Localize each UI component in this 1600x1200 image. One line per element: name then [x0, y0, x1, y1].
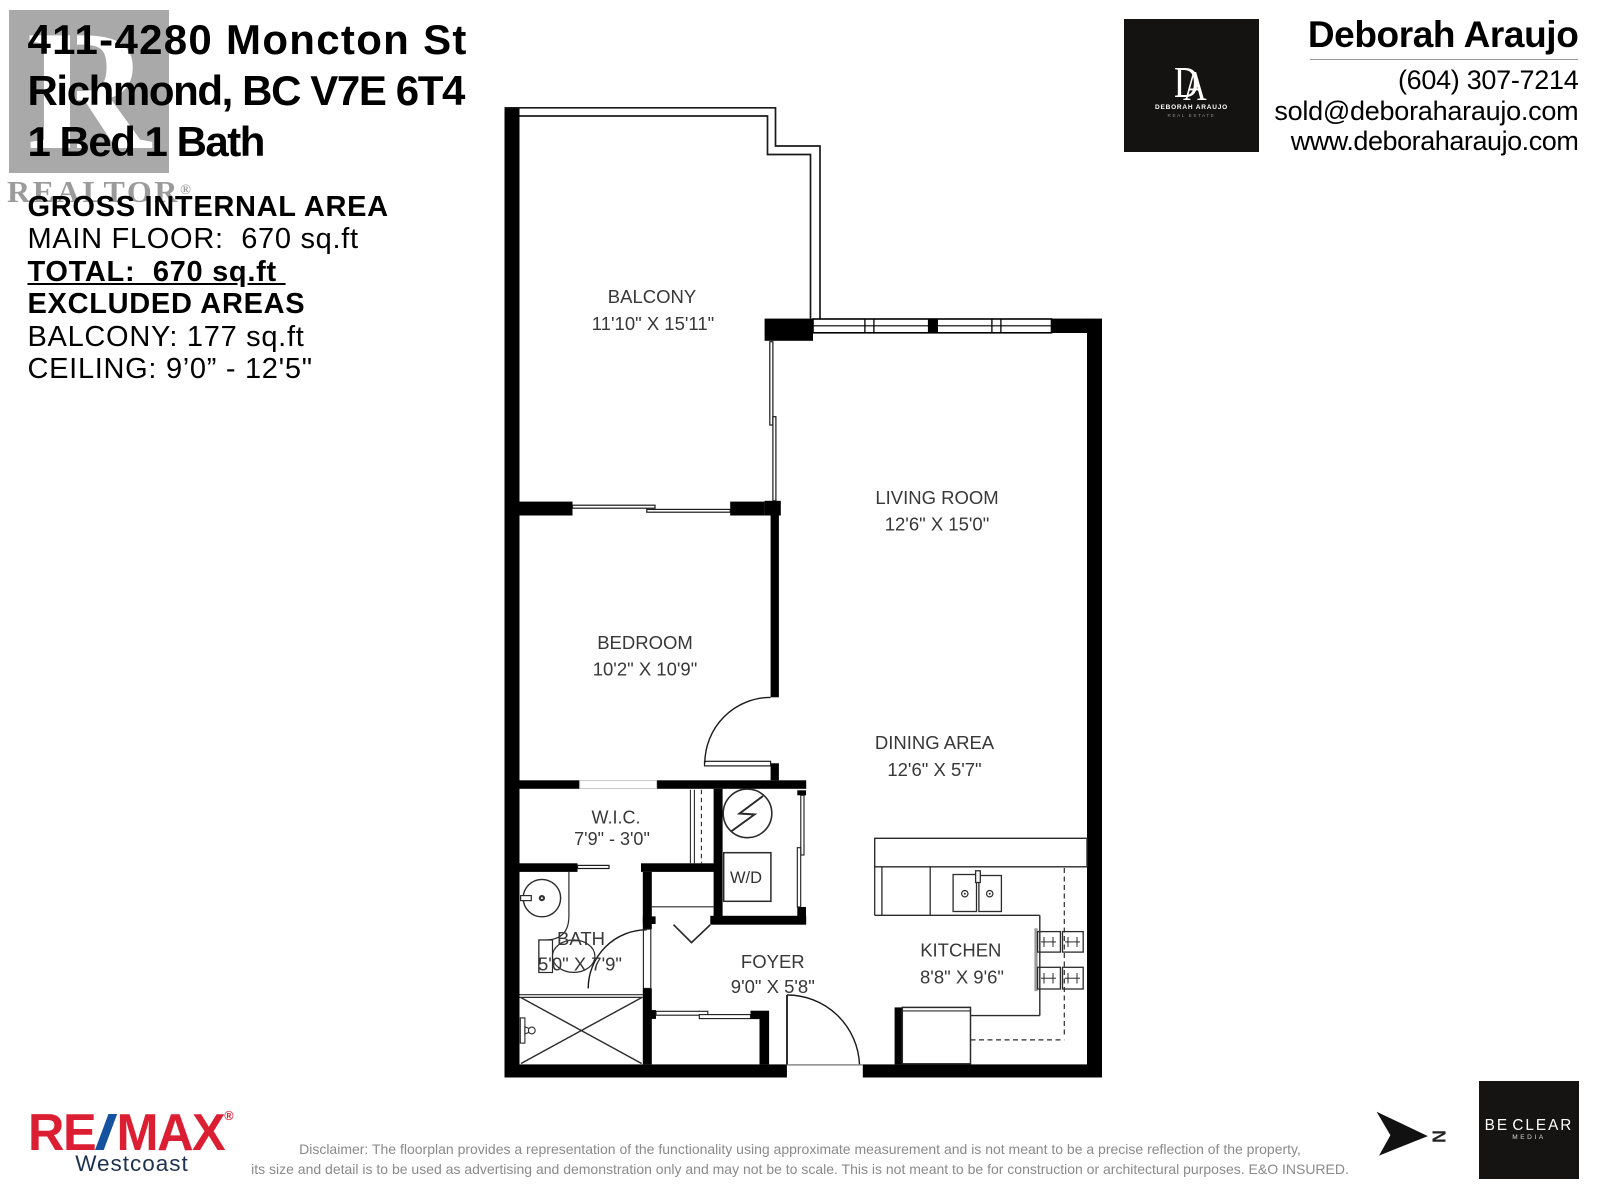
svg-text:FOYER: FOYER	[741, 951, 805, 972]
svg-text:5'0" X 7'9": 5'0" X 7'9"	[538, 954, 622, 975]
svg-text:BEDROOM: BEDROOM	[597, 632, 693, 653]
svg-text:N: N	[1429, 1130, 1449, 1143]
svg-text:BALCONY: BALCONY	[608, 286, 696, 307]
svg-text:W.I.C.: W.I.C.	[592, 808, 641, 828]
svg-text:11'10" X 15'11": 11'10" X 15'11"	[592, 313, 714, 334]
svg-text:12'6" X 15'0": 12'6" X 15'0"	[885, 514, 990, 535]
svg-text:KITCHEN: KITCHEN	[920, 940, 1001, 961]
svg-text:DINING AREA: DINING AREA	[875, 732, 995, 753]
svg-text:7'9" - 3'0": 7'9" - 3'0"	[574, 829, 650, 849]
svg-text:8'8" X 9'6": 8'8" X 9'6"	[920, 967, 1004, 988]
svg-text:LIVING ROOM: LIVING ROOM	[875, 487, 998, 508]
svg-text:W/D: W/D	[730, 869, 762, 887]
svg-text:9'0" X 5'8": 9'0" X 5'8"	[731, 976, 815, 997]
svg-text:BATH: BATH	[557, 928, 605, 949]
svg-text:12'6" X 5'7": 12'6" X 5'7"	[887, 759, 981, 780]
svg-text:10'2" X 10'9": 10'2" X 10'9"	[593, 659, 698, 680]
